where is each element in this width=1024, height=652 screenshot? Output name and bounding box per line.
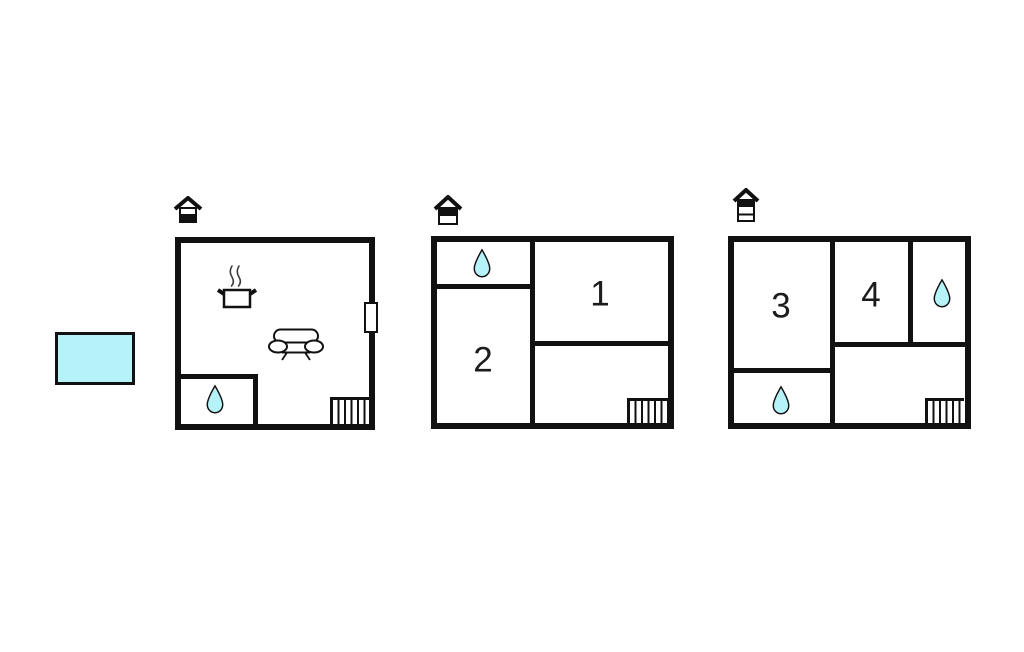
- floorplan-ground-floor: [175, 237, 375, 430]
- floorplan-canvas: 1 2 3 4: [0, 0, 1024, 652]
- interior-wall: [908, 242, 913, 342]
- house-upper-floor-icon: [433, 195, 463, 227]
- interior-wall: [530, 341, 668, 346]
- interior-wall: [437, 284, 535, 289]
- interior-wall: [830, 242, 835, 423]
- interior-wall: [530, 242, 535, 423]
- floorplan-first-floor: [431, 236, 674, 429]
- stairs: [330, 397, 369, 424]
- water-drop-icon: [932, 278, 952, 309]
- floorplan-second-floor: [728, 236, 971, 429]
- water-drop-icon: [771, 385, 791, 416]
- room-label-1: 1: [590, 277, 609, 312]
- interior-wall: [734, 368, 835, 373]
- room-label-3: 3: [771, 289, 790, 324]
- house-ground-floor-icon: [173, 196, 203, 224]
- water-drop-icon: [472, 248, 492, 279]
- interior-wall: [830, 342, 965, 347]
- swimming-pool: [55, 332, 135, 385]
- room-label-4: 4: [861, 278, 880, 313]
- cooking-pot-icon: [217, 263, 257, 309]
- house-top-floor-icon: [732, 188, 760, 224]
- stairs: [627, 398, 668, 423]
- door-window: [364, 302, 378, 333]
- interior-wall: [253, 374, 258, 424]
- room-label-2: 2: [473, 343, 492, 378]
- interior-wall: [181, 374, 258, 379]
- sofa-icon: [267, 327, 325, 361]
- water-drop-icon: [205, 384, 225, 415]
- stairs: [925, 398, 964, 423]
